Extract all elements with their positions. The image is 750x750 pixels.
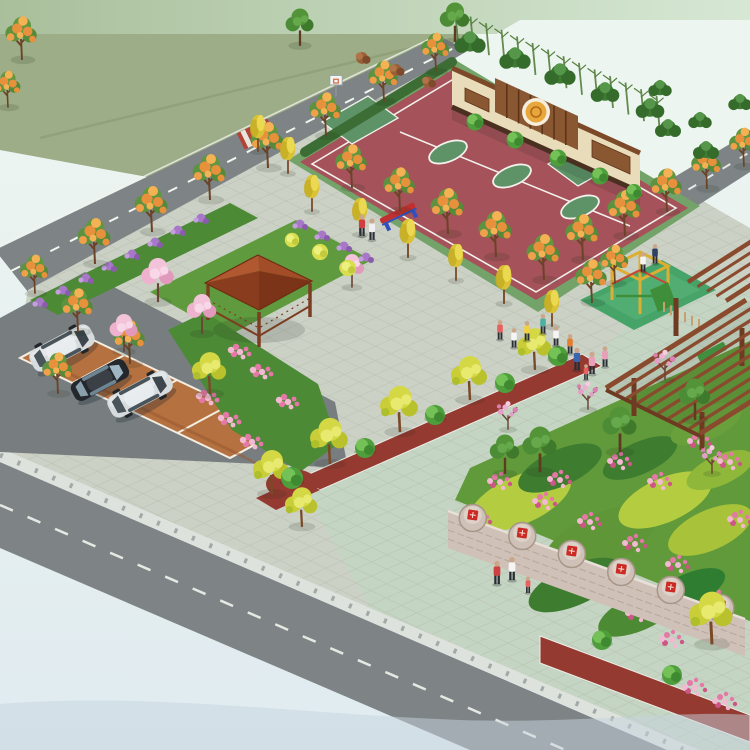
pink-flowers	[269, 372, 274, 377]
rose-flowers	[487, 478, 493, 484]
rose-flowers	[488, 520, 492, 524]
rose-flowers	[687, 680, 693, 686]
rose-flowers	[700, 683, 704, 687]
park-aerial-render: Aerial isometric landscape rendering of …	[0, 0, 750, 750]
rose-flowers	[632, 541, 638, 547]
rose-flowers	[726, 706, 730, 710]
rose-flowers	[730, 697, 734, 701]
pink-flowers	[247, 352, 252, 357]
rose-flowers	[727, 516, 733, 522]
rose-flowers	[722, 699, 728, 705]
pink-flowers	[259, 442, 264, 447]
rose-flowers	[627, 536, 633, 542]
rose-flowers	[724, 692, 728, 696]
rose-flowers	[705, 437, 709, 441]
purple-flower-cluster	[124, 253, 129, 258]
rose-flowers	[595, 517, 599, 521]
rose-flowers	[735, 457, 739, 461]
pink-flowers	[231, 423, 236, 428]
purple-flower-cluster	[180, 230, 186, 236]
red-seal-motif	[566, 545, 577, 556]
pink-flowers	[227, 417, 233, 423]
pink-flowers	[228, 347, 234, 353]
rose-flowers	[731, 466, 735, 470]
rose-flowers	[729, 452, 733, 456]
pink-flowers	[259, 369, 265, 375]
rose-flowers	[738, 462, 742, 466]
rose-flowers	[739, 510, 743, 514]
purple-flower-cluster	[292, 223, 297, 228]
rose-flowers	[625, 457, 629, 461]
purple-flower-cluster	[157, 242, 163, 248]
rose-flowers	[501, 486, 505, 490]
rose-flowers	[643, 544, 647, 548]
rose-flowers	[565, 475, 569, 479]
pink-flowers	[250, 367, 256, 373]
rose-flowers	[657, 479, 663, 485]
rose-flowers	[537, 494, 543, 500]
red-seal-motif	[517, 527, 528, 538]
red-seal-motif	[616, 563, 627, 574]
pink-flowers	[285, 399, 291, 405]
pink-flowers	[234, 415, 239, 420]
rose-flowers	[568, 480, 572, 484]
purple-flower-cluster	[302, 224, 308, 230]
rose-flowers	[670, 557, 676, 563]
rose-flowers	[622, 540, 628, 546]
rose-flowers	[694, 678, 698, 682]
purple-flower-cluster	[134, 254, 140, 260]
pink-flowers	[266, 367, 271, 372]
rose-flowers	[717, 694, 723, 700]
rose-flowers	[628, 462, 632, 466]
rose-flowers	[703, 688, 707, 692]
pink-flowers	[241, 355, 246, 360]
purple-flower-cluster	[203, 218, 209, 224]
pink-flowers	[237, 349, 243, 355]
purple-flower-cluster	[55, 289, 60, 294]
rose-flowers	[661, 486, 665, 490]
yellow-shrub-ball	[340, 260, 356, 276]
park-render-stage: Aerial isometric landscape rendering of …	[0, 0, 750, 750]
rose-flowers	[737, 517, 743, 523]
red-seal-motif	[665, 581, 676, 592]
rose-flowers	[561, 484, 565, 488]
rose-flowers	[665, 561, 671, 567]
rose-flowers	[683, 560, 687, 564]
rose-flowers	[577, 518, 583, 524]
rose-flowers	[542, 499, 548, 505]
rose-flowers	[686, 565, 690, 569]
purple-flower-cluster	[336, 245, 341, 250]
rose-flowers	[546, 506, 550, 510]
rose-flowers	[727, 459, 733, 465]
rose-flowers	[587, 519, 593, 525]
rose-flowers	[682, 684, 688, 690]
rose-flowers	[696, 692, 700, 696]
rose-flowers	[732, 512, 738, 518]
rose-flowers	[607, 458, 613, 464]
rose-flowers	[617, 459, 623, 465]
purple-flower-cluster	[32, 301, 37, 306]
rose-flowers	[659, 636, 665, 642]
purple-flower-cluster	[193, 217, 198, 222]
purple-flower-cluster	[346, 246, 352, 252]
pink-flowers	[295, 402, 300, 407]
rose-flowers	[589, 512, 593, 516]
rose-flowers	[559, 470, 563, 474]
purple-flower-cluster	[314, 234, 319, 239]
rose-flowers	[591, 526, 595, 530]
rose-flowers	[668, 482, 672, 486]
rose-flowers	[652, 474, 658, 480]
rose-flowers	[659, 472, 663, 476]
yellow-shrub-ball	[312, 244, 328, 260]
rose-flowers	[722, 454, 728, 460]
rose-flowers	[692, 685, 698, 691]
pink-flowers	[292, 397, 297, 402]
rose-flowers	[557, 477, 563, 483]
purple-flower-cluster	[111, 266, 117, 272]
rose-flowers	[679, 569, 683, 573]
rose-flowers	[671, 630, 675, 634]
rose-flowers	[508, 482, 512, 486]
rose-flowers	[665, 477, 669, 481]
rose-flowers	[532, 498, 538, 504]
rose-flowers	[553, 502, 557, 506]
rose-flowers	[677, 635, 681, 639]
purple-flower-cluster	[324, 235, 330, 241]
pink-flowers	[289, 405, 294, 410]
rose-flowers	[647, 478, 653, 484]
pink-flowers	[253, 445, 258, 450]
purple-flower-cluster	[42, 302, 48, 308]
purple-flower-cluster	[170, 229, 175, 234]
rose-flowers	[733, 702, 737, 706]
purple-flower-cluster	[78, 277, 83, 282]
rose-flowers	[497, 479, 503, 485]
pink-flowers	[276, 397, 282, 403]
rose-flowers	[636, 548, 640, 552]
rose-flowers	[712, 698, 718, 704]
rose-flowers	[687, 438, 693, 444]
rose-flowers	[544, 492, 548, 496]
rose-flowers	[547, 476, 553, 482]
rose-flowers	[598, 522, 602, 526]
rose-flowers	[621, 466, 625, 470]
rose-flowers	[634, 534, 638, 538]
rose-flowers	[669, 637, 675, 643]
yellow-shrub-ball	[285, 233, 299, 247]
rose-flowers	[640, 539, 644, 543]
rose-flowers	[680, 640, 684, 644]
rose-flowers	[673, 644, 677, 648]
pink-flowers	[215, 398, 220, 403]
rose-flowers	[550, 497, 554, 501]
rose-flowers	[582, 514, 588, 520]
rose-flowers	[745, 515, 749, 519]
pink-flowers	[240, 437, 246, 443]
rose-flowers	[664, 632, 670, 638]
pink-flowers	[249, 439, 255, 445]
rose-flowers	[675, 562, 681, 568]
purple-flower-cluster	[88, 278, 94, 284]
purple-flower-cluster	[147, 241, 152, 246]
pink-flowers	[237, 420, 242, 425]
rose-flowers	[677, 555, 681, 559]
emblem-disc	[526, 102, 547, 123]
pink-flowers	[209, 401, 214, 406]
rose-flowers	[741, 524, 745, 528]
pink-flowers	[244, 347, 249, 352]
pink-flowers	[263, 375, 268, 380]
purple-flower-cluster	[368, 257, 374, 263]
pink-flowers	[218, 415, 224, 421]
pink-flowers	[256, 437, 261, 442]
red-seal-motif	[467, 509, 478, 520]
